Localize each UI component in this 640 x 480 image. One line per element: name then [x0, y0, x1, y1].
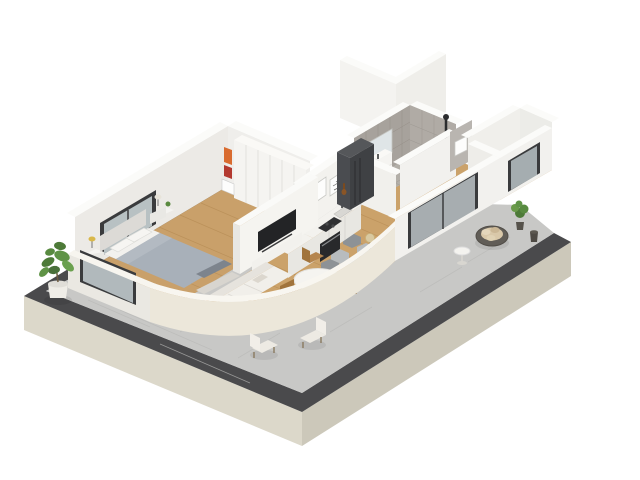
shelf-books-orange — [224, 147, 232, 165]
throw-pillow — [482, 229, 491, 235]
dark-planter — [530, 230, 538, 242]
floorplan-render — [0, 0, 640, 480]
tv-wall-end-cap — [233, 223, 240, 274]
isometric-floorplan — [0, 0, 640, 480]
shower-head — [443, 114, 449, 120]
foliage — [516, 201, 523, 208]
planter-top — [530, 230, 538, 234]
plant-pot — [516, 222, 524, 230]
leaf — [47, 265, 60, 275]
throw-pillow — [491, 227, 500, 233]
bottle-body — [342, 189, 347, 195]
leaf — [53, 241, 66, 251]
table-top — [454, 247, 470, 255]
burner — [331, 224, 334, 227]
small-plant — [166, 202, 171, 207]
table-base — [457, 261, 467, 265]
throw-pillow — [487, 235, 496, 241]
gold-table-lamp — [89, 237, 96, 242]
leaf — [44, 247, 56, 257]
table-lamp — [155, 195, 162, 200]
fridge-side — [337, 152, 350, 210]
burner — [325, 222, 328, 225]
refrigerator — [337, 138, 374, 210]
